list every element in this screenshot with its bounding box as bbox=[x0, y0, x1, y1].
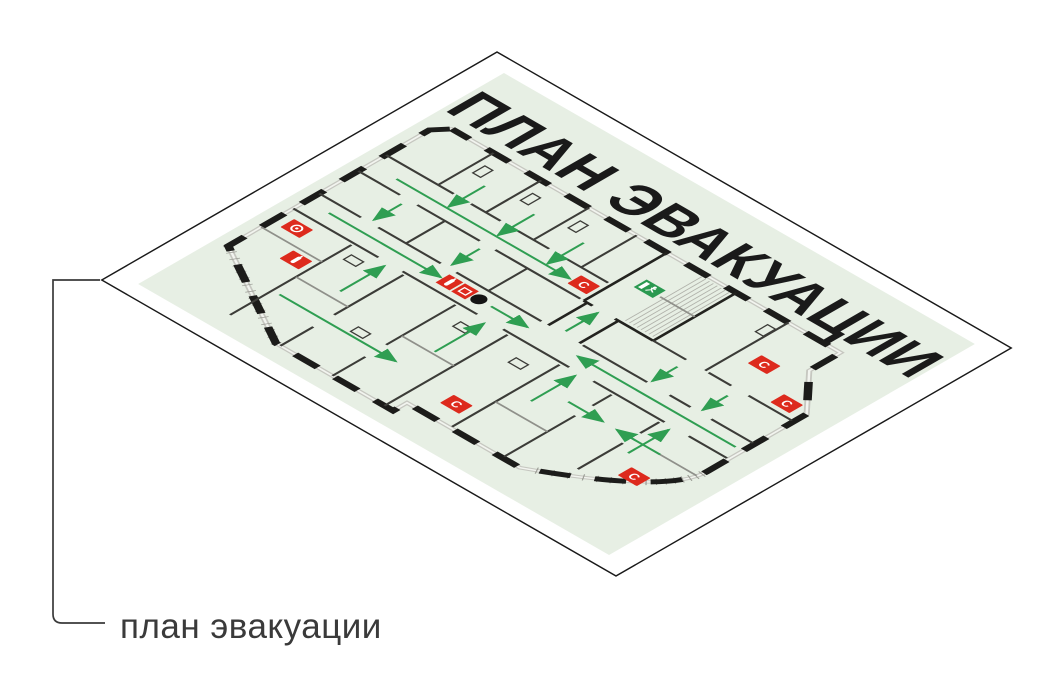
page: ПЛАН ЭВАКУАЦИИ bbox=[0, 0, 1064, 699]
callout-leader-line bbox=[53, 280, 105, 623]
callout-label: план эвакуации bbox=[120, 608, 382, 647]
